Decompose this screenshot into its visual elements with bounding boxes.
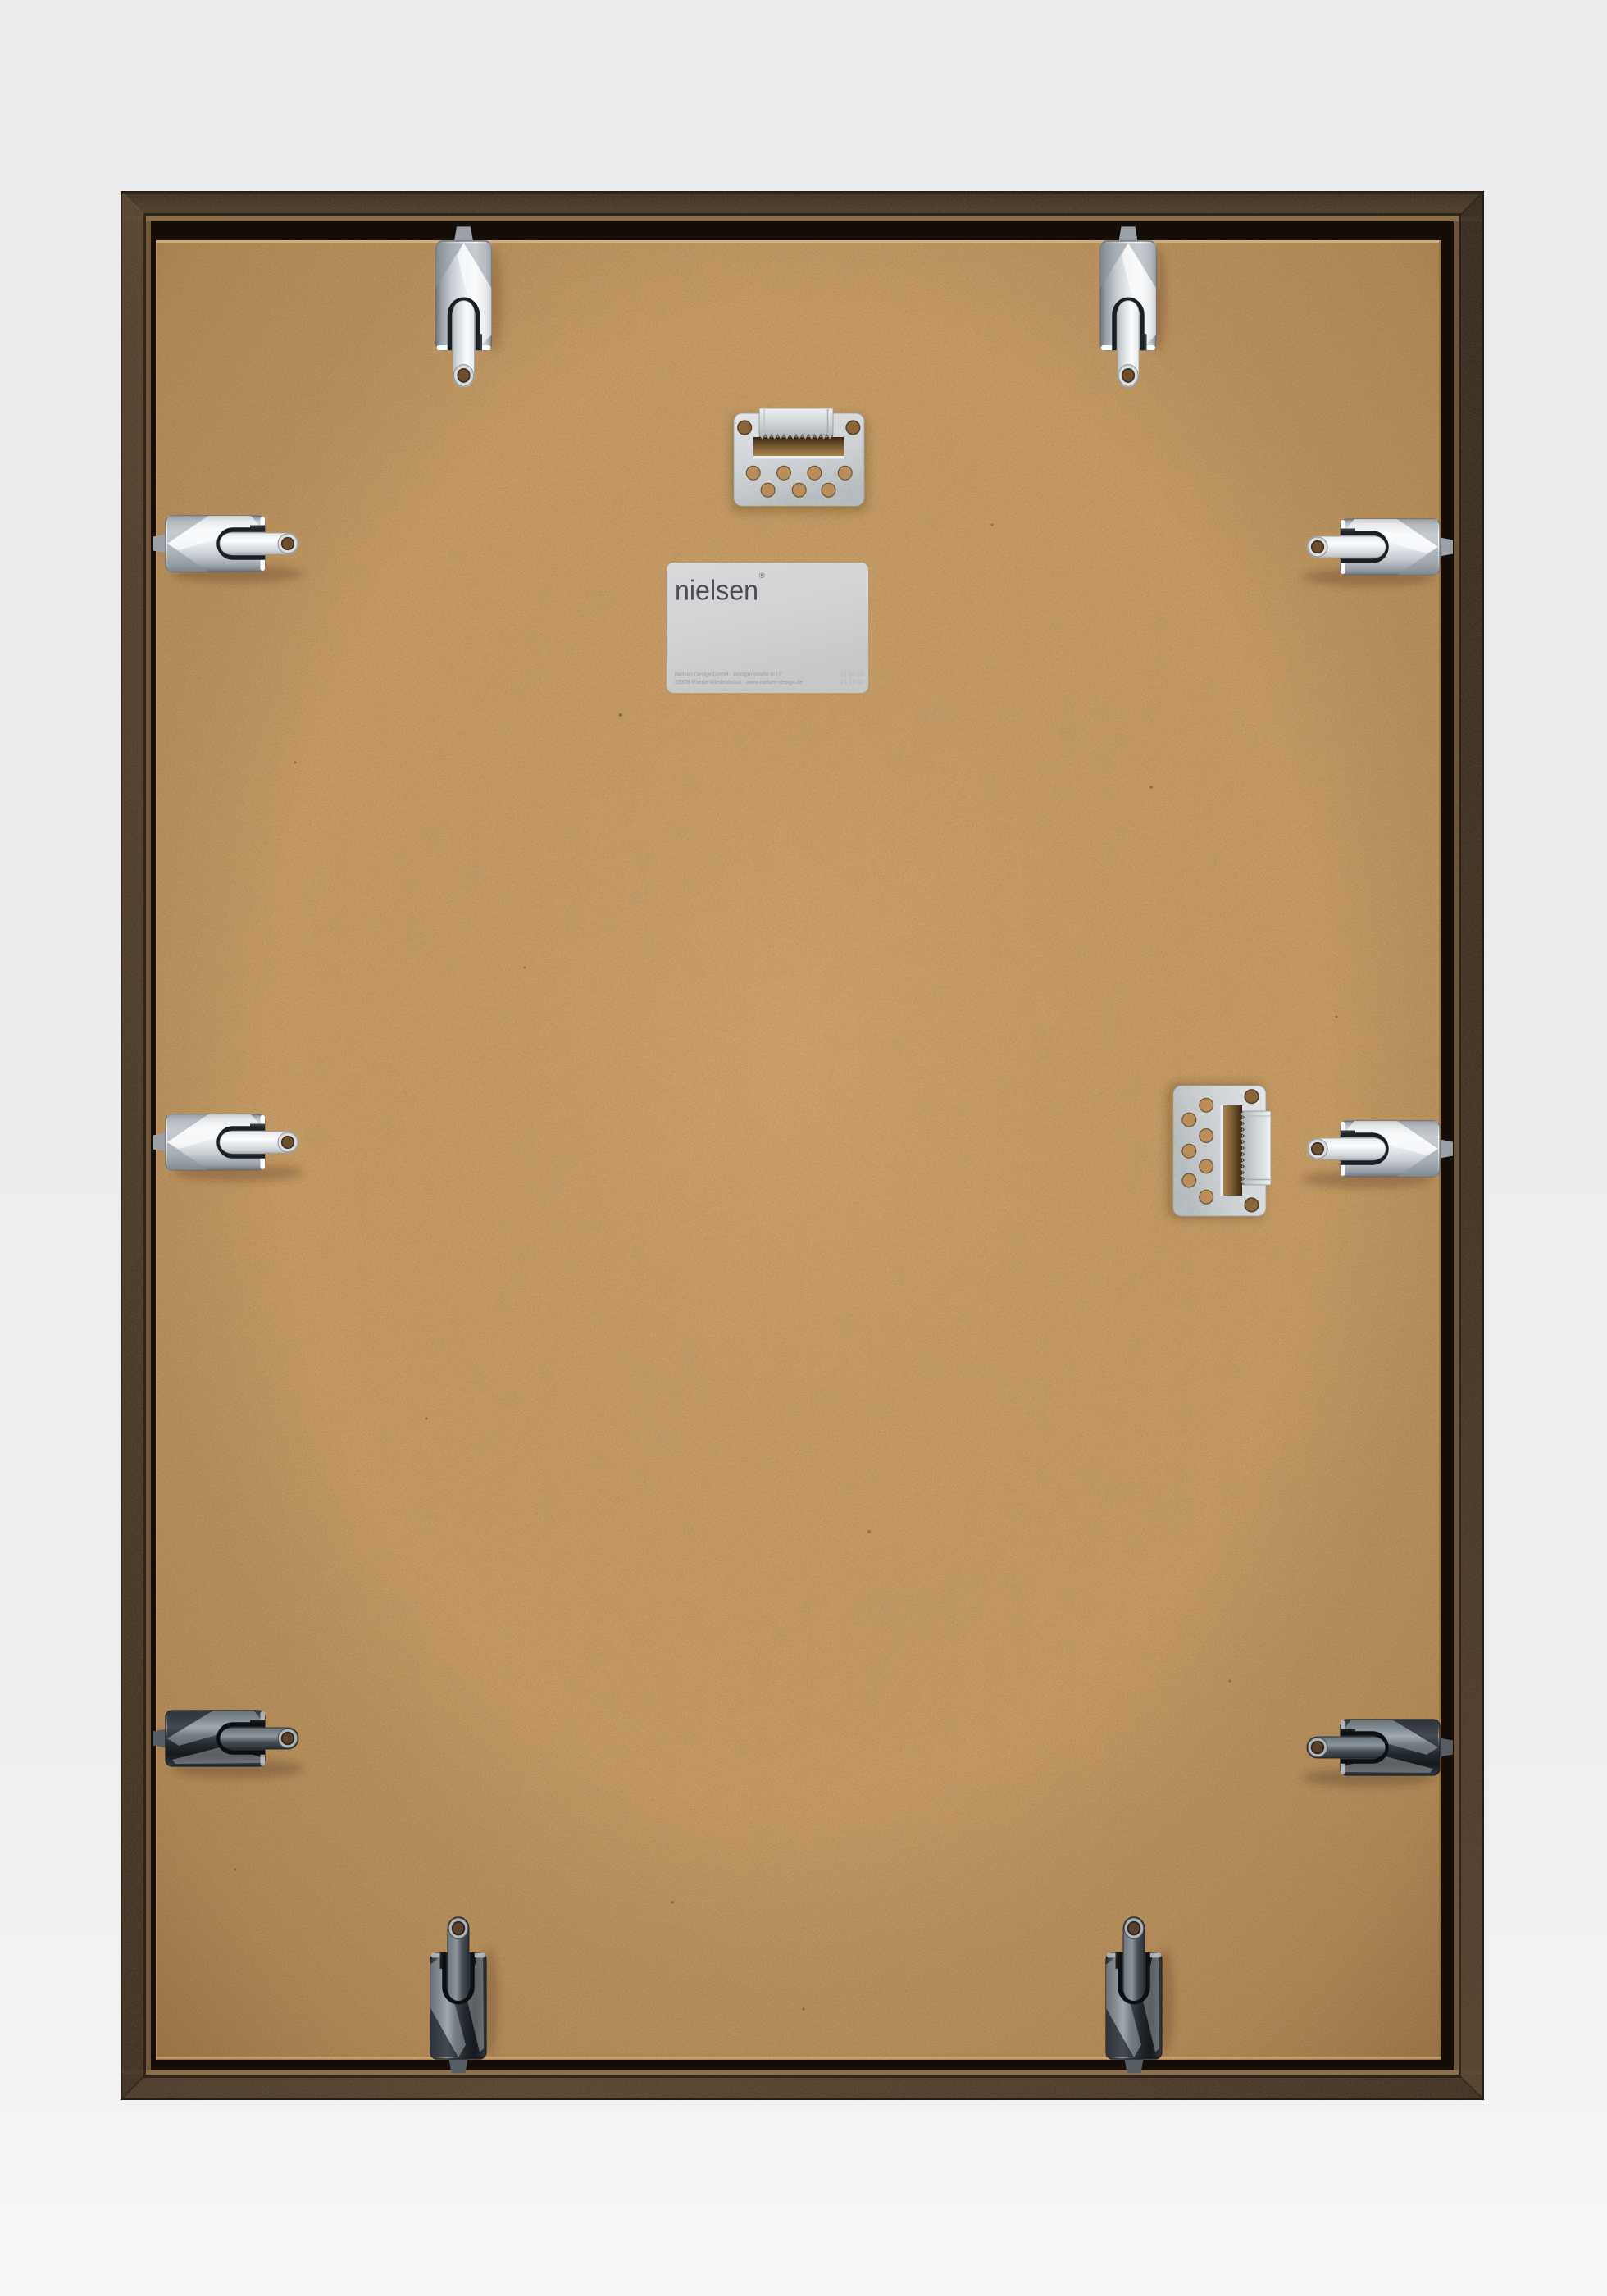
svg-text:21 10 11: 21 10 11	[840, 678, 864, 686]
svg-text:11 56 20: 11 56 20	[840, 671, 864, 678]
svg-text:33378 Rheda-Wiedenbrück · www.: 33378 Rheda-Wiedenbrück · www.nielsen-de…	[675, 678, 803, 686]
svg-text:Nielsen Design GmbH · Röntgens: Nielsen Design GmbH · Röntgenstraße 8-12	[675, 671, 781, 678]
svg-text:®: ®	[759, 572, 765, 580]
svg-text:nielsen: nielsen	[675, 576, 758, 607]
